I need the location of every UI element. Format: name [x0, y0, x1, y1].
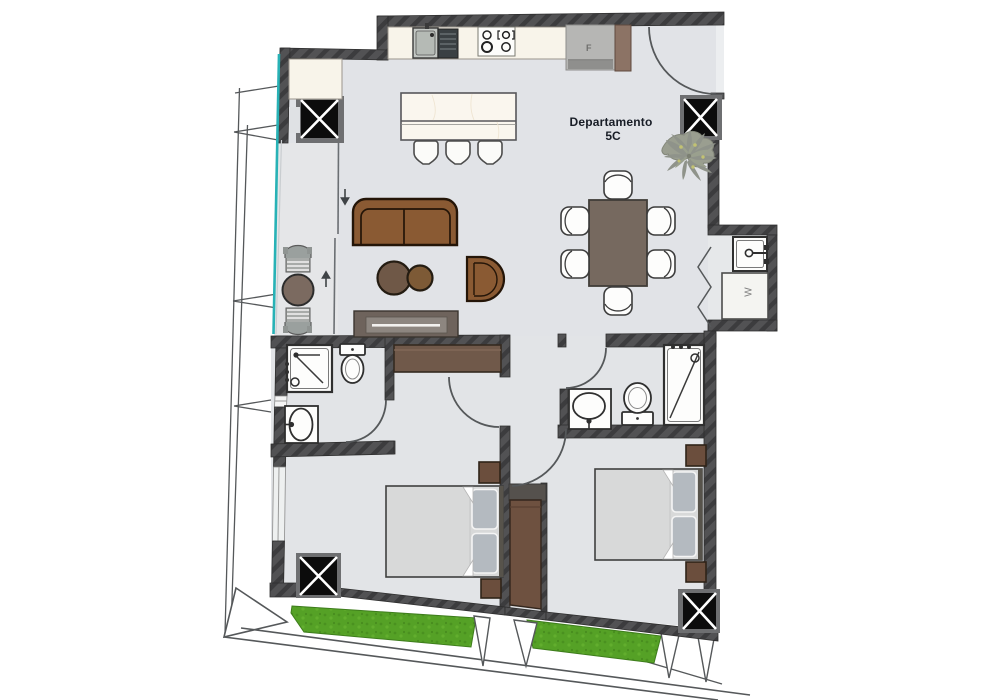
svg-text:5C: 5C: [605, 129, 621, 143]
svg-text:Departamento: Departamento: [569, 115, 652, 129]
svg-text:F: F: [586, 43, 592, 53]
svg-text:W: W: [744, 287, 755, 297]
